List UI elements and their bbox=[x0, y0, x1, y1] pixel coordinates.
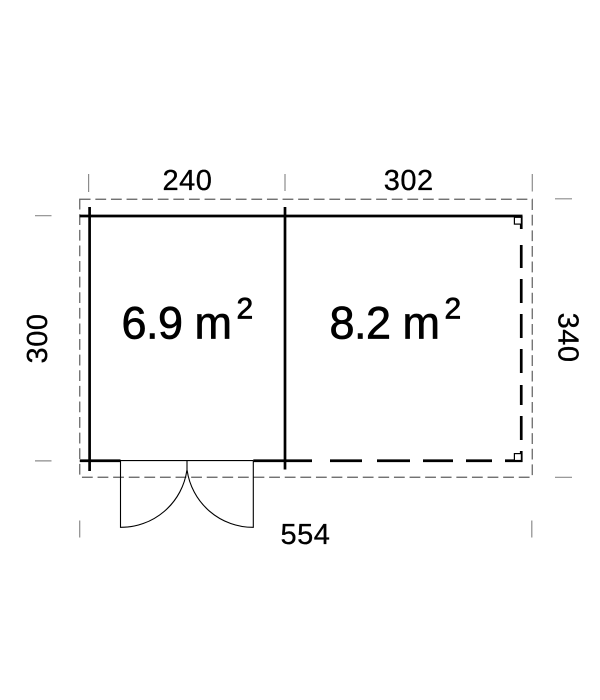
svg-text:6.9 m: 6.9 m bbox=[122, 297, 232, 348]
svg-text:8.2 m: 8.2 m bbox=[330, 297, 440, 348]
svg-text:240: 240 bbox=[163, 165, 213, 197]
svg-text:302: 302 bbox=[384, 165, 434, 197]
svg-text:340: 340 bbox=[552, 313, 584, 363]
svg-text:300: 300 bbox=[22, 314, 54, 364]
svg-text:2: 2 bbox=[237, 293, 254, 326]
svg-text:2: 2 bbox=[445, 293, 462, 326]
svg-text:554: 554 bbox=[281, 519, 331, 551]
